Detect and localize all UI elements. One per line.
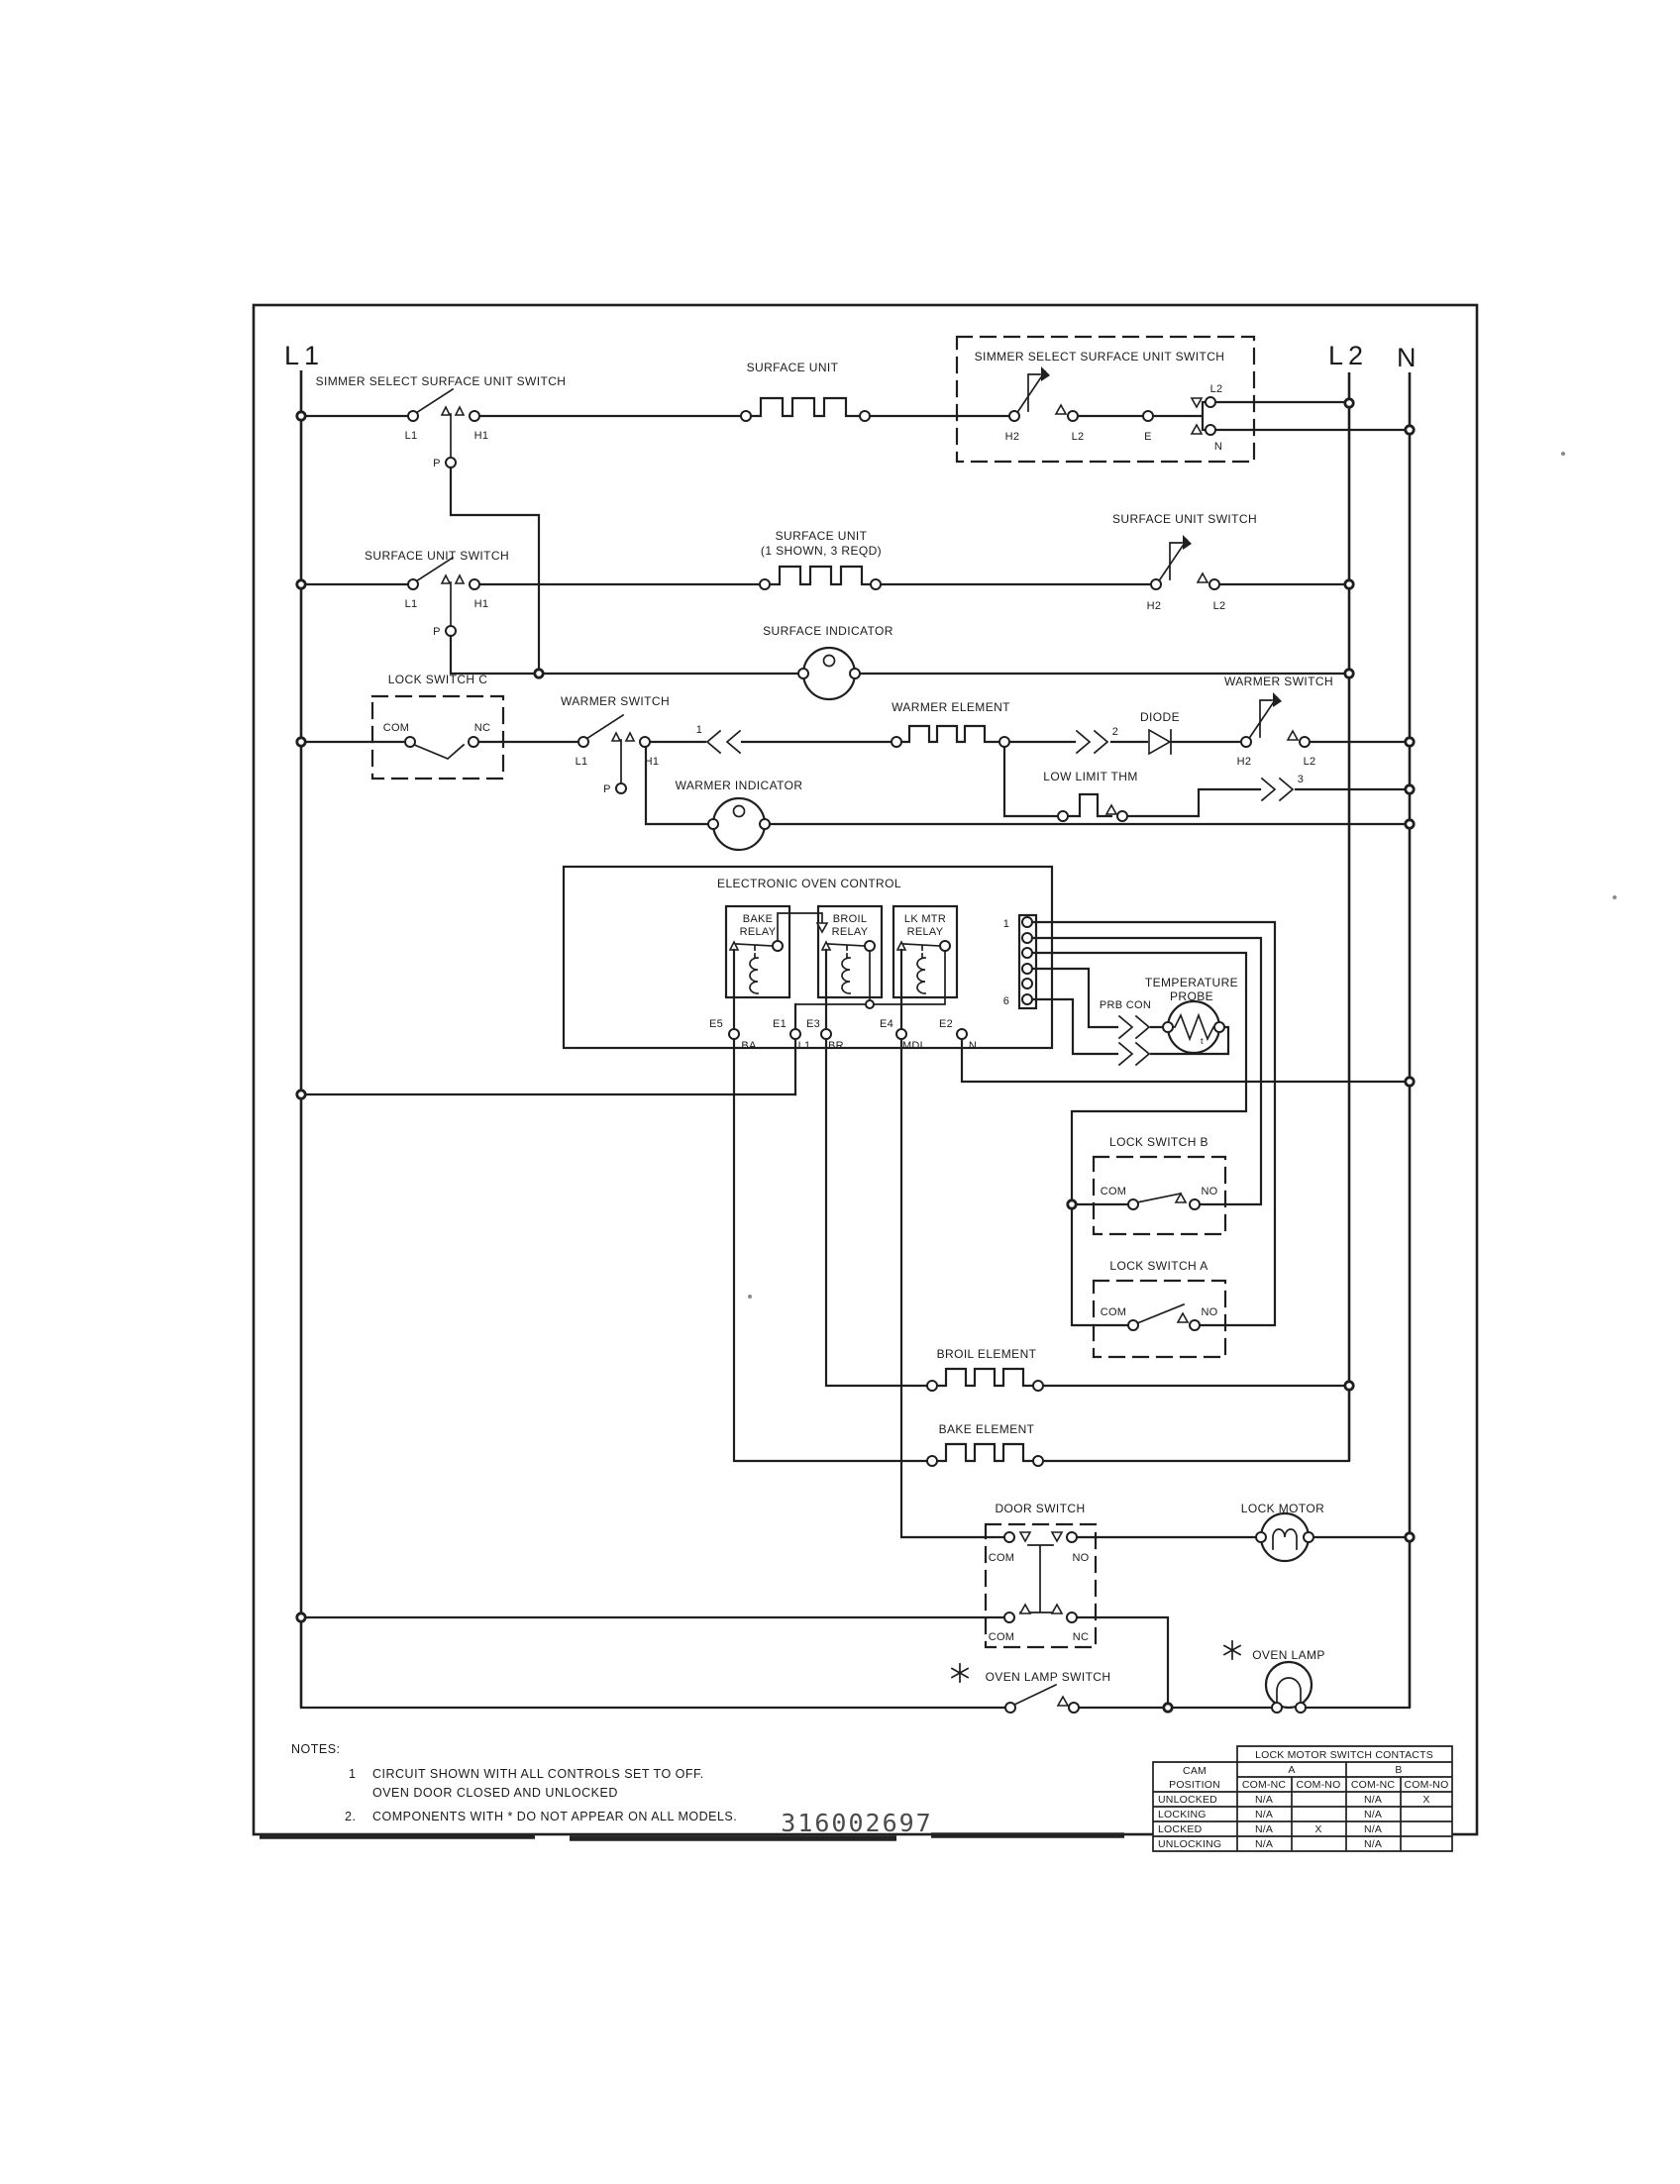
switch-contact [1069, 1703, 1079, 1713]
eoc-label: ELECTRONIC OVEN CONTROL [717, 877, 901, 890]
lock-switch-a-blade [1137, 1304, 1184, 1323]
terminal-p: P [603, 783, 611, 795]
table-cell: N/A [1364, 1794, 1382, 1806]
table-row-label: LOCKED [1158, 1823, 1203, 1835]
com-contact [1128, 1320, 1138, 1330]
oven-lamp-circuit: OVEN LAMP SWITCH OVEN LAMP [301, 1641, 1410, 1713]
surface-unit-multi-label1: SURFACE UNIT [776, 529, 868, 543]
lamp-contact [1296, 1703, 1306, 1713]
terminal-no: NO [1201, 1186, 1217, 1197]
element-contact [927, 1381, 937, 1391]
e3-contact [821, 1029, 831, 1039]
thm-marker [1106, 805, 1116, 814]
element-contact [927, 1456, 937, 1466]
terminal-nb: N [969, 1040, 977, 1052]
note-2-text: COMPONENTS WITH * DO NOT APPEAR ON ALL M… [372, 1810, 737, 1823]
terminal-nc: NC [474, 722, 491, 734]
connector-3-chevron [1262, 779, 1275, 800]
table-title: LOCK MOTOR SWITCH CONTACTS [1255, 1749, 1433, 1761]
terminal-e1: E1 [773, 1018, 787, 1030]
l2-out-contact [1206, 397, 1215, 407]
pin-contact [1022, 964, 1032, 974]
table-cell: N/A [1364, 1838, 1382, 1850]
switch-marker [1020, 1605, 1030, 1613]
e1-contact [790, 1029, 800, 1039]
prb-con-chevron [1119, 1016, 1132, 1038]
table-group-a: A [1288, 1764, 1295, 1776]
surface-indicator-wires [451, 636, 1349, 674]
connector-1-chevron [707, 731, 720, 753]
warmer-circuit: LOCK SWITCH C COM NC WARMER SWITCH L1 P … [301, 673, 1410, 850]
wiring-diagram: L1 L2 N SIMMER SELECT SURFACE UNIT SWITC… [0, 0, 1680, 2179]
internal-contact [866, 1000, 874, 1008]
terminal-l1: L1 [405, 598, 418, 610]
scan-speck [1561, 452, 1565, 456]
no-contact [1190, 1320, 1200, 1330]
element-contact [741, 411, 751, 421]
scan-speck [748, 1295, 752, 1299]
scan-smudge-bottom [260, 1835, 1124, 1838]
lk-mtr-relay-label2: RELAY [907, 926, 944, 938]
note-1-line1: CIRCUIT SHOWN WITH ALL CONTROLS SET TO O… [372, 1767, 704, 1781]
table-col-header: COM-NC [1242, 1779, 1287, 1791]
prb-con-chevron [1119, 1043, 1132, 1065]
prb-con-chevron [1136, 1016, 1149, 1038]
pin-contact [1022, 948, 1032, 958]
warmer-element [901, 726, 1000, 742]
warmer-indicator-label: WARMER INDICATOR [676, 779, 803, 792]
terminal-ba: BA [741, 1040, 757, 1052]
terminal-nc: NC [1073, 1631, 1090, 1643]
oven-lamp-label: OVEN LAMP [1252, 1648, 1325, 1662]
nc-contact [1067, 1612, 1077, 1622]
nc-contact [469, 737, 478, 747]
element-junction-contact [999, 737, 1009, 747]
diode-symbol [1149, 730, 1170, 754]
probe-t-mark: t [1201, 1036, 1204, 1046]
motor-contact [1304, 1532, 1313, 1542]
no-contact [1067, 1532, 1077, 1542]
terminal-l1: L1 [405, 430, 418, 442]
pin-contact [1022, 933, 1032, 943]
terminal-l2-out: L2 [1210, 383, 1223, 395]
scanned-wiring-diagram-page: L1 L2 N SIMMER SELECT SURFACE UNIT SWITC… [0, 0, 1680, 2179]
table-cam-header1: CAM [1183, 1765, 1207, 1777]
table-row-label: UNLOCKING [1158, 1838, 1221, 1850]
oven-lamp-body [1266, 1662, 1312, 1708]
asterisk-icon [1224, 1641, 1240, 1659]
diode-label: DIODE [1140, 710, 1180, 724]
lock-motor-coil [1273, 1529, 1297, 1549]
pin-label-1: 1 [1003, 918, 1009, 930]
table-cell: N/A [1255, 1823, 1273, 1835]
com-contact [1128, 1199, 1138, 1209]
switch-marker [1052, 1532, 1062, 1541]
lock-motor-contacts-table: LOCK MOTOR SWITCH CONTACTS CAM POSITION … [1153, 1746, 1452, 1851]
terminal-marker [1192, 398, 1202, 407]
temperature-probe-label1: TEMPERATURE [1145, 976, 1238, 989]
lock-switch-a-label: LOCK SWITCH A [1109, 1259, 1207, 1273]
notes: NOTES: 1 CIRCUIT SHOWN WITH ALL CONTROLS… [291, 1742, 933, 1837]
row1-simmer-select-circuit: SIMMER SELECT SURFACE UNIT SWITCH SURFAC… [301, 337, 1410, 674]
connector-2-chevron [1095, 731, 1107, 753]
n-out-contact [1206, 425, 1215, 435]
connector-1-chevron [727, 731, 740, 753]
note-2-number: 2. [345, 1810, 356, 1823]
note-1-line2: OVEN DOOR CLOSED AND UNLOCKED [372, 1786, 618, 1800]
thm-contact [1117, 811, 1127, 821]
terminal-e2: E2 [939, 1018, 953, 1030]
surface-unit-switch-right-label: SURFACE UNIT SWITCH [1112, 512, 1257, 526]
element-contact [760, 579, 770, 589]
bake-element-label: BAKE ELEMENT [939, 1422, 1035, 1436]
door-switch-label: DOOR SWITCH [995, 1502, 1085, 1515]
connector-2-label: 2 [1112, 726, 1118, 738]
connector-3-label: 3 [1298, 774, 1304, 785]
terminal-l2: L2 [1304, 756, 1316, 768]
low-limit-thm-label: LOW LIMIT THM [1043, 770, 1137, 783]
surface-unit-switch [408, 558, 479, 636]
oven-elements: BROIL ELEMENT BAKE ELEMENT [927, 1347, 1349, 1466]
e5-contact [729, 1029, 739, 1039]
broil-relay-label2: RELAY [832, 926, 869, 938]
pin-label-6: 6 [1003, 995, 1009, 1007]
switch-marker [1052, 1605, 1062, 1613]
terminal-h1: H1 [474, 430, 489, 442]
terminal-mdl: MDL [902, 1040, 926, 1052]
bus-label-n: N [1397, 343, 1421, 372]
pin-contact [1022, 994, 1032, 1004]
lamp-contact [1272, 1703, 1282, 1713]
prb-con-label: PRB CON [1100, 999, 1151, 1011]
terminal-h2: H2 [1147, 600, 1162, 612]
pin-contact [1022, 917, 1032, 927]
lock-switch-a-box [1094, 1281, 1225, 1357]
table-cell: N/A [1255, 1794, 1273, 1806]
table-group-b: B [1395, 1764, 1402, 1776]
simmer-select-switch-label: SIMMER SELECT SURFACE UNIT SWITCH [316, 374, 567, 388]
terminal-marker [1192, 425, 1202, 434]
terminal-p: P [433, 458, 441, 469]
surface-unit-switch-label: SURFACE UNIT SWITCH [365, 549, 509, 563]
broil-element [937, 1369, 1349, 1386]
terminal-com: COM [989, 1552, 1015, 1564]
terminal-no: NO [1072, 1552, 1089, 1564]
connector-3-chevron [1280, 779, 1293, 800]
e4-contact [896, 1029, 906, 1039]
terminal-l2: L2 [1072, 431, 1085, 443]
note-1-number: 1 [349, 1767, 356, 1781]
surface-unit-element-2 [770, 567, 871, 584]
terminal-p: P [433, 626, 441, 638]
warmer-element-label: WARMER ELEMENT [892, 700, 1010, 714]
simmer-select-switch [408, 389, 479, 468]
switch-marker [1178, 1313, 1188, 1322]
switch-marker [1058, 1697, 1068, 1706]
surface-unit-element [751, 398, 860, 416]
terminal-com: COM [1101, 1306, 1127, 1318]
pin-contact [1022, 979, 1032, 988]
terminal-l1b: L1 [798, 1040, 811, 1052]
broil-relay-label1: BROIL [833, 913, 868, 925]
temperature-probe-circuit: TEMPERATURE PROBE PRB CON t [1032, 969, 1238, 1065]
table-cell: N/A [1255, 1809, 1273, 1820]
bake-relay-label1: BAKE [743, 913, 774, 925]
terminal-e3: E3 [806, 1018, 820, 1030]
terminal-br: BR [828, 1040, 844, 1052]
switch-marker [1020, 1532, 1030, 1541]
terminal-e4: E4 [880, 1018, 893, 1030]
thm-contact [1058, 811, 1068, 821]
oven-lamp-switch-label: OVEN LAMP SWITCH [986, 1670, 1111, 1684]
connector-2-chevron [1077, 731, 1090, 753]
bus-label-l2: L2 [1328, 341, 1368, 370]
simmer-select-box-switch [1009, 366, 1078, 421]
surface-unit-multi-label2: (1 SHOWN, 3 REQD) [761, 544, 882, 558]
lk-mtr-relay-label1: LK MTR [904, 913, 946, 925]
terminal-no: NO [1201, 1306, 1217, 1318]
element-contact [871, 579, 881, 589]
part-number: 316002697 [781, 1809, 932, 1837]
surface-unit-label: SURFACE UNIT [747, 361, 839, 374]
table-cell: X [1314, 1823, 1321, 1835]
electronic-oven-control: ELECTRONIC OVEN CONTROL BAKE RELAY BROIL… [564, 867, 1410, 1537]
lock-switch-b-blade [1137, 1194, 1181, 1202]
table-row-label: UNLOCKED [1158, 1794, 1217, 1806]
lock-switch-c-blade [412, 744, 464, 759]
table-col-header: COM-NC [1351, 1779, 1396, 1791]
element-contact [1033, 1381, 1043, 1391]
terminal-l1: L1 [576, 756, 588, 768]
table-row-label: LOCKING [1158, 1809, 1207, 1820]
notes-title: NOTES: [291, 1742, 341, 1756]
motor-contact [1256, 1532, 1266, 1542]
asterisk-icon [952, 1664, 968, 1682]
warmer-switch-label: WARMER SWITCH [561, 694, 670, 708]
terminal-com: COM [1101, 1186, 1127, 1197]
e2-contact [957, 1029, 967, 1039]
probe-resistor [1173, 1015, 1215, 1039]
lock-switch-c-label: LOCK SWITCH C [388, 673, 488, 686]
com-contact [405, 737, 415, 747]
table-col-header: COM-NO [1297, 1779, 1341, 1791]
lock-switch-c-box [372, 696, 503, 779]
door-switch-wires [301, 1537, 1410, 1708]
bake-relay-label2: RELAY [740, 926, 777, 938]
warmer-indicator-lamp [708, 798, 770, 850]
terminal-h2: H2 [1237, 756, 1252, 768]
terminal-e-contact [1143, 411, 1153, 421]
prb-con-chevron [1136, 1043, 1149, 1065]
element-contact [1033, 1456, 1043, 1466]
table-cell: X [1422, 1794, 1429, 1806]
broil-element-label: BROIL ELEMENT [937, 1347, 1037, 1361]
door-switch-linkage [1020, 1545, 1061, 1612]
warmer-switch [578, 715, 650, 793]
table-col-header: COM-NO [1405, 1779, 1449, 1791]
element-contact [892, 737, 901, 747]
terminal-com: COM [989, 1631, 1015, 1643]
probe-contact [1214, 1022, 1224, 1032]
probe-contact [1163, 1022, 1173, 1032]
door-switch-lock-motor: DOOR SWITCH COM NO COM NC LOCK MOTOR [301, 1502, 1410, 1708]
terminal-h1: H1 [474, 598, 489, 610]
bus-label-l1: L1 [284, 341, 324, 370]
simmer-select-box-label: SIMMER SELECT SURFACE UNIT SWITCH [975, 350, 1225, 364]
terminal-e: E [1144, 431, 1152, 443]
com-contact [1004, 1532, 1014, 1542]
table-cell: N/A [1364, 1809, 1382, 1820]
connector-1-label: 1 [696, 724, 702, 736]
scan-speck [1613, 895, 1617, 899]
surface-indicator-row: SURFACE INDICATOR [451, 624, 1349, 699]
row2-surface-unit-circuit: SURFACE UNIT SWITCH SURFACE UNIT (1 SHOW… [301, 512, 1349, 638]
com-contact [1004, 1612, 1014, 1622]
warmer-switch-right-label: WARMER SWITCH [1224, 675, 1333, 688]
bake-element [937, 1444, 1349, 1461]
terminal-l2: L2 [1213, 600, 1226, 612]
table-cam-header2: POSITION [1169, 1779, 1220, 1791]
surface-indicator-label: SURFACE INDICATOR [763, 624, 893, 638]
surface-indicator-lamp [798, 648, 860, 699]
table-cell: N/A [1255, 1838, 1273, 1850]
terminal-n-out: N [1214, 441, 1222, 453]
lock-switch-b-label: LOCK SWITCH B [1109, 1135, 1208, 1149]
terminal-h2: H2 [1005, 431, 1020, 443]
switch-contact [1005, 1703, 1015, 1713]
surface-unit-switch-right [1151, 535, 1219, 589]
row1-p-branch [451, 468, 539, 674]
oven-lamp-switch-blade [1012, 1685, 1056, 1706]
no-contact [1190, 1199, 1200, 1209]
terminal-com: COM [383, 722, 410, 734]
warmer-switch-right [1241, 692, 1310, 747]
element-contact [860, 411, 870, 421]
terminal-e5: E5 [709, 1018, 723, 1030]
table-cell: N/A [1364, 1823, 1382, 1835]
